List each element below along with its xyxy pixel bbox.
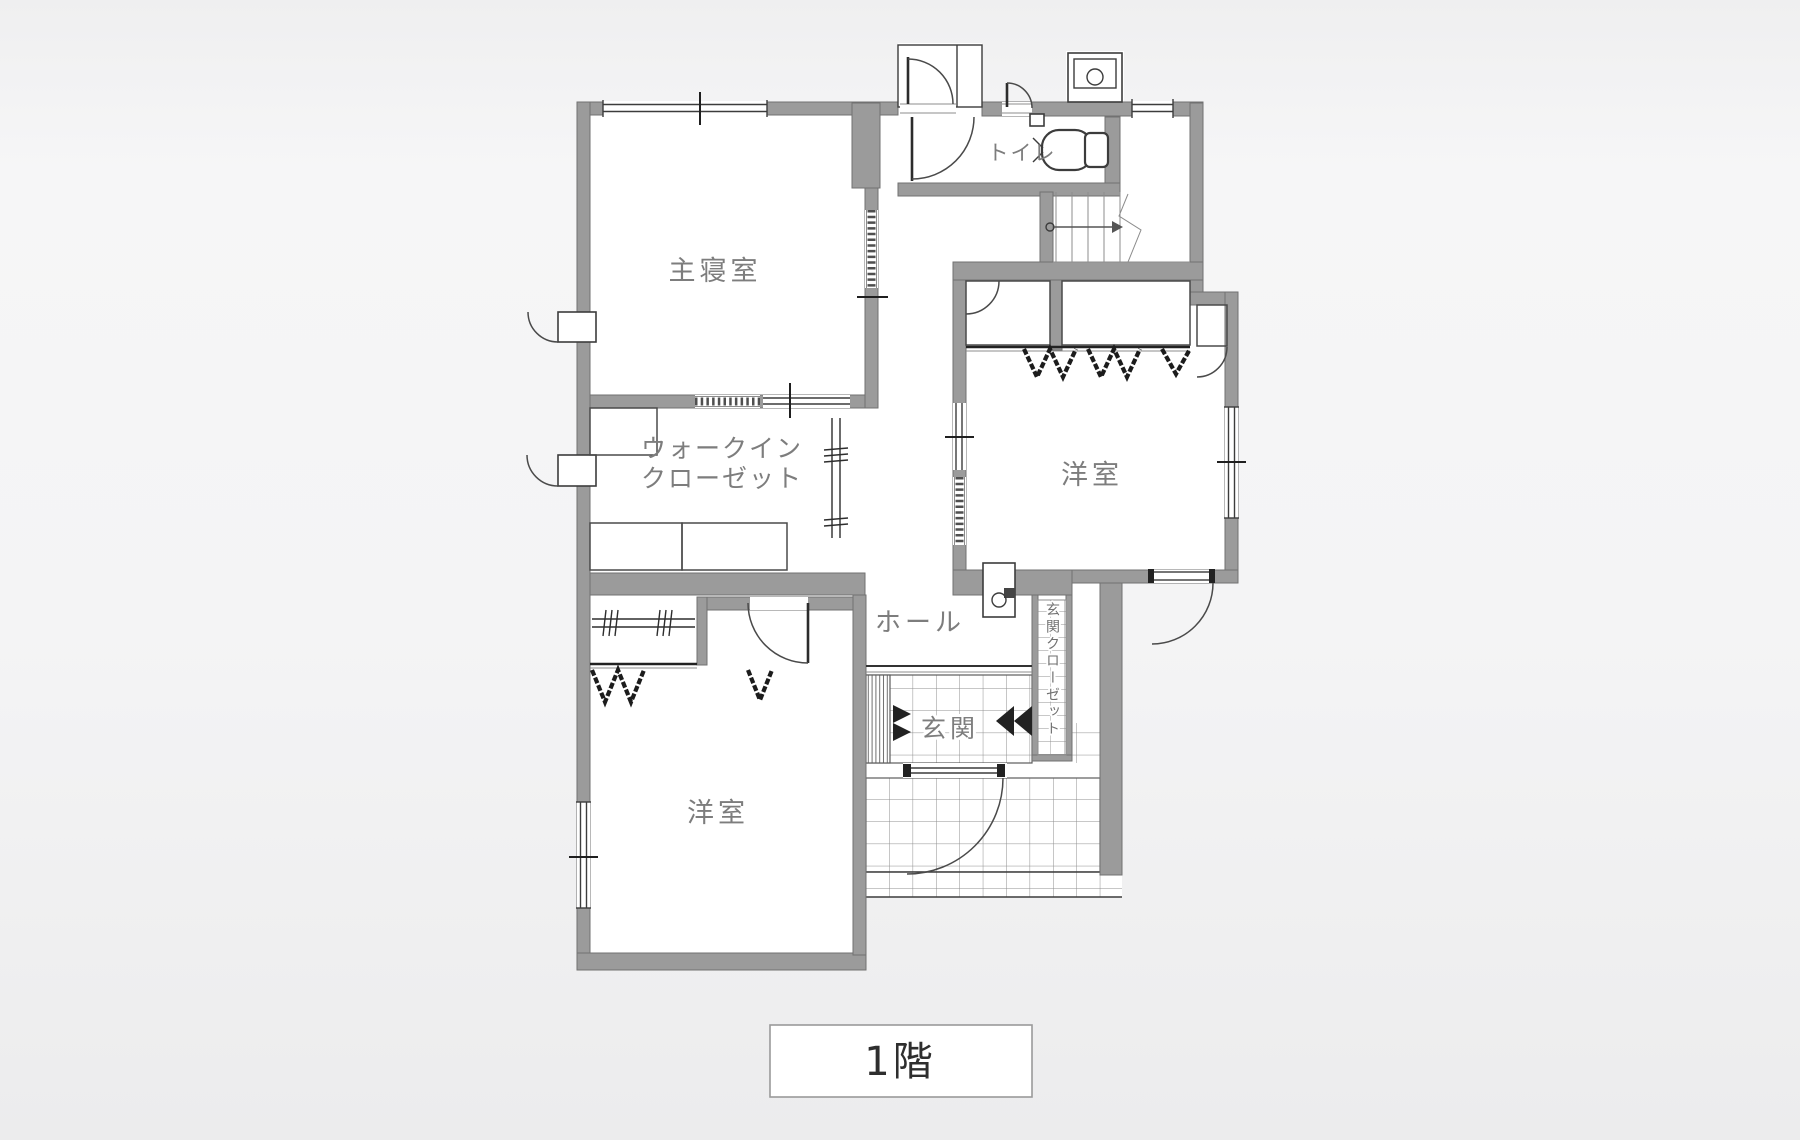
exterior-door-western-room-right	[1148, 569, 1215, 644]
floor-tag-label: 1階	[864, 1039, 935, 1085]
sink-icon	[1068, 53, 1122, 102]
label-walk-in-closet-line1: ウォークイン	[641, 434, 803, 463]
hall-cabinet-icon	[983, 563, 1015, 617]
label-entrance: 玄関	[921, 714, 979, 743]
label-hall: ホール	[875, 608, 965, 638]
sliding-window-western-room-left-wall	[953, 477, 966, 545]
floor-tag: 1階	[770, 1025, 1032, 1097]
label-toilet: トイレ	[988, 141, 1057, 165]
label-walk-in-closet-line2: クローゼット	[641, 464, 803, 493]
small-door-top-wall	[1002, 83, 1032, 116]
page: 主寝室 ウォークイン クローゼット 洋室 洋室 ホール 玄関 トイレ 玄関クロー…	[0, 0, 1800, 1140]
shoe-cabinet-louver	[866, 675, 890, 763]
vent-window-left-lower	[527, 455, 596, 486]
floor-plan: 主寝室 ウォークイン クローゼット 洋室 洋室 ホール 玄関 トイレ 玄関クロー…	[0, 0, 1800, 1140]
label-master-bedroom: 主寝室	[669, 256, 762, 287]
porch-tile-floor	[853, 778, 1122, 953]
vent-window-left-upper	[528, 312, 596, 342]
label-western-room-right: 洋室	[1061, 460, 1123, 491]
label-western-room-bottom: 洋室	[687, 798, 749, 829]
window-top-right	[1132, 99, 1173, 118]
label-entrance-closet: 玄関クローゼット	[1044, 601, 1060, 738]
